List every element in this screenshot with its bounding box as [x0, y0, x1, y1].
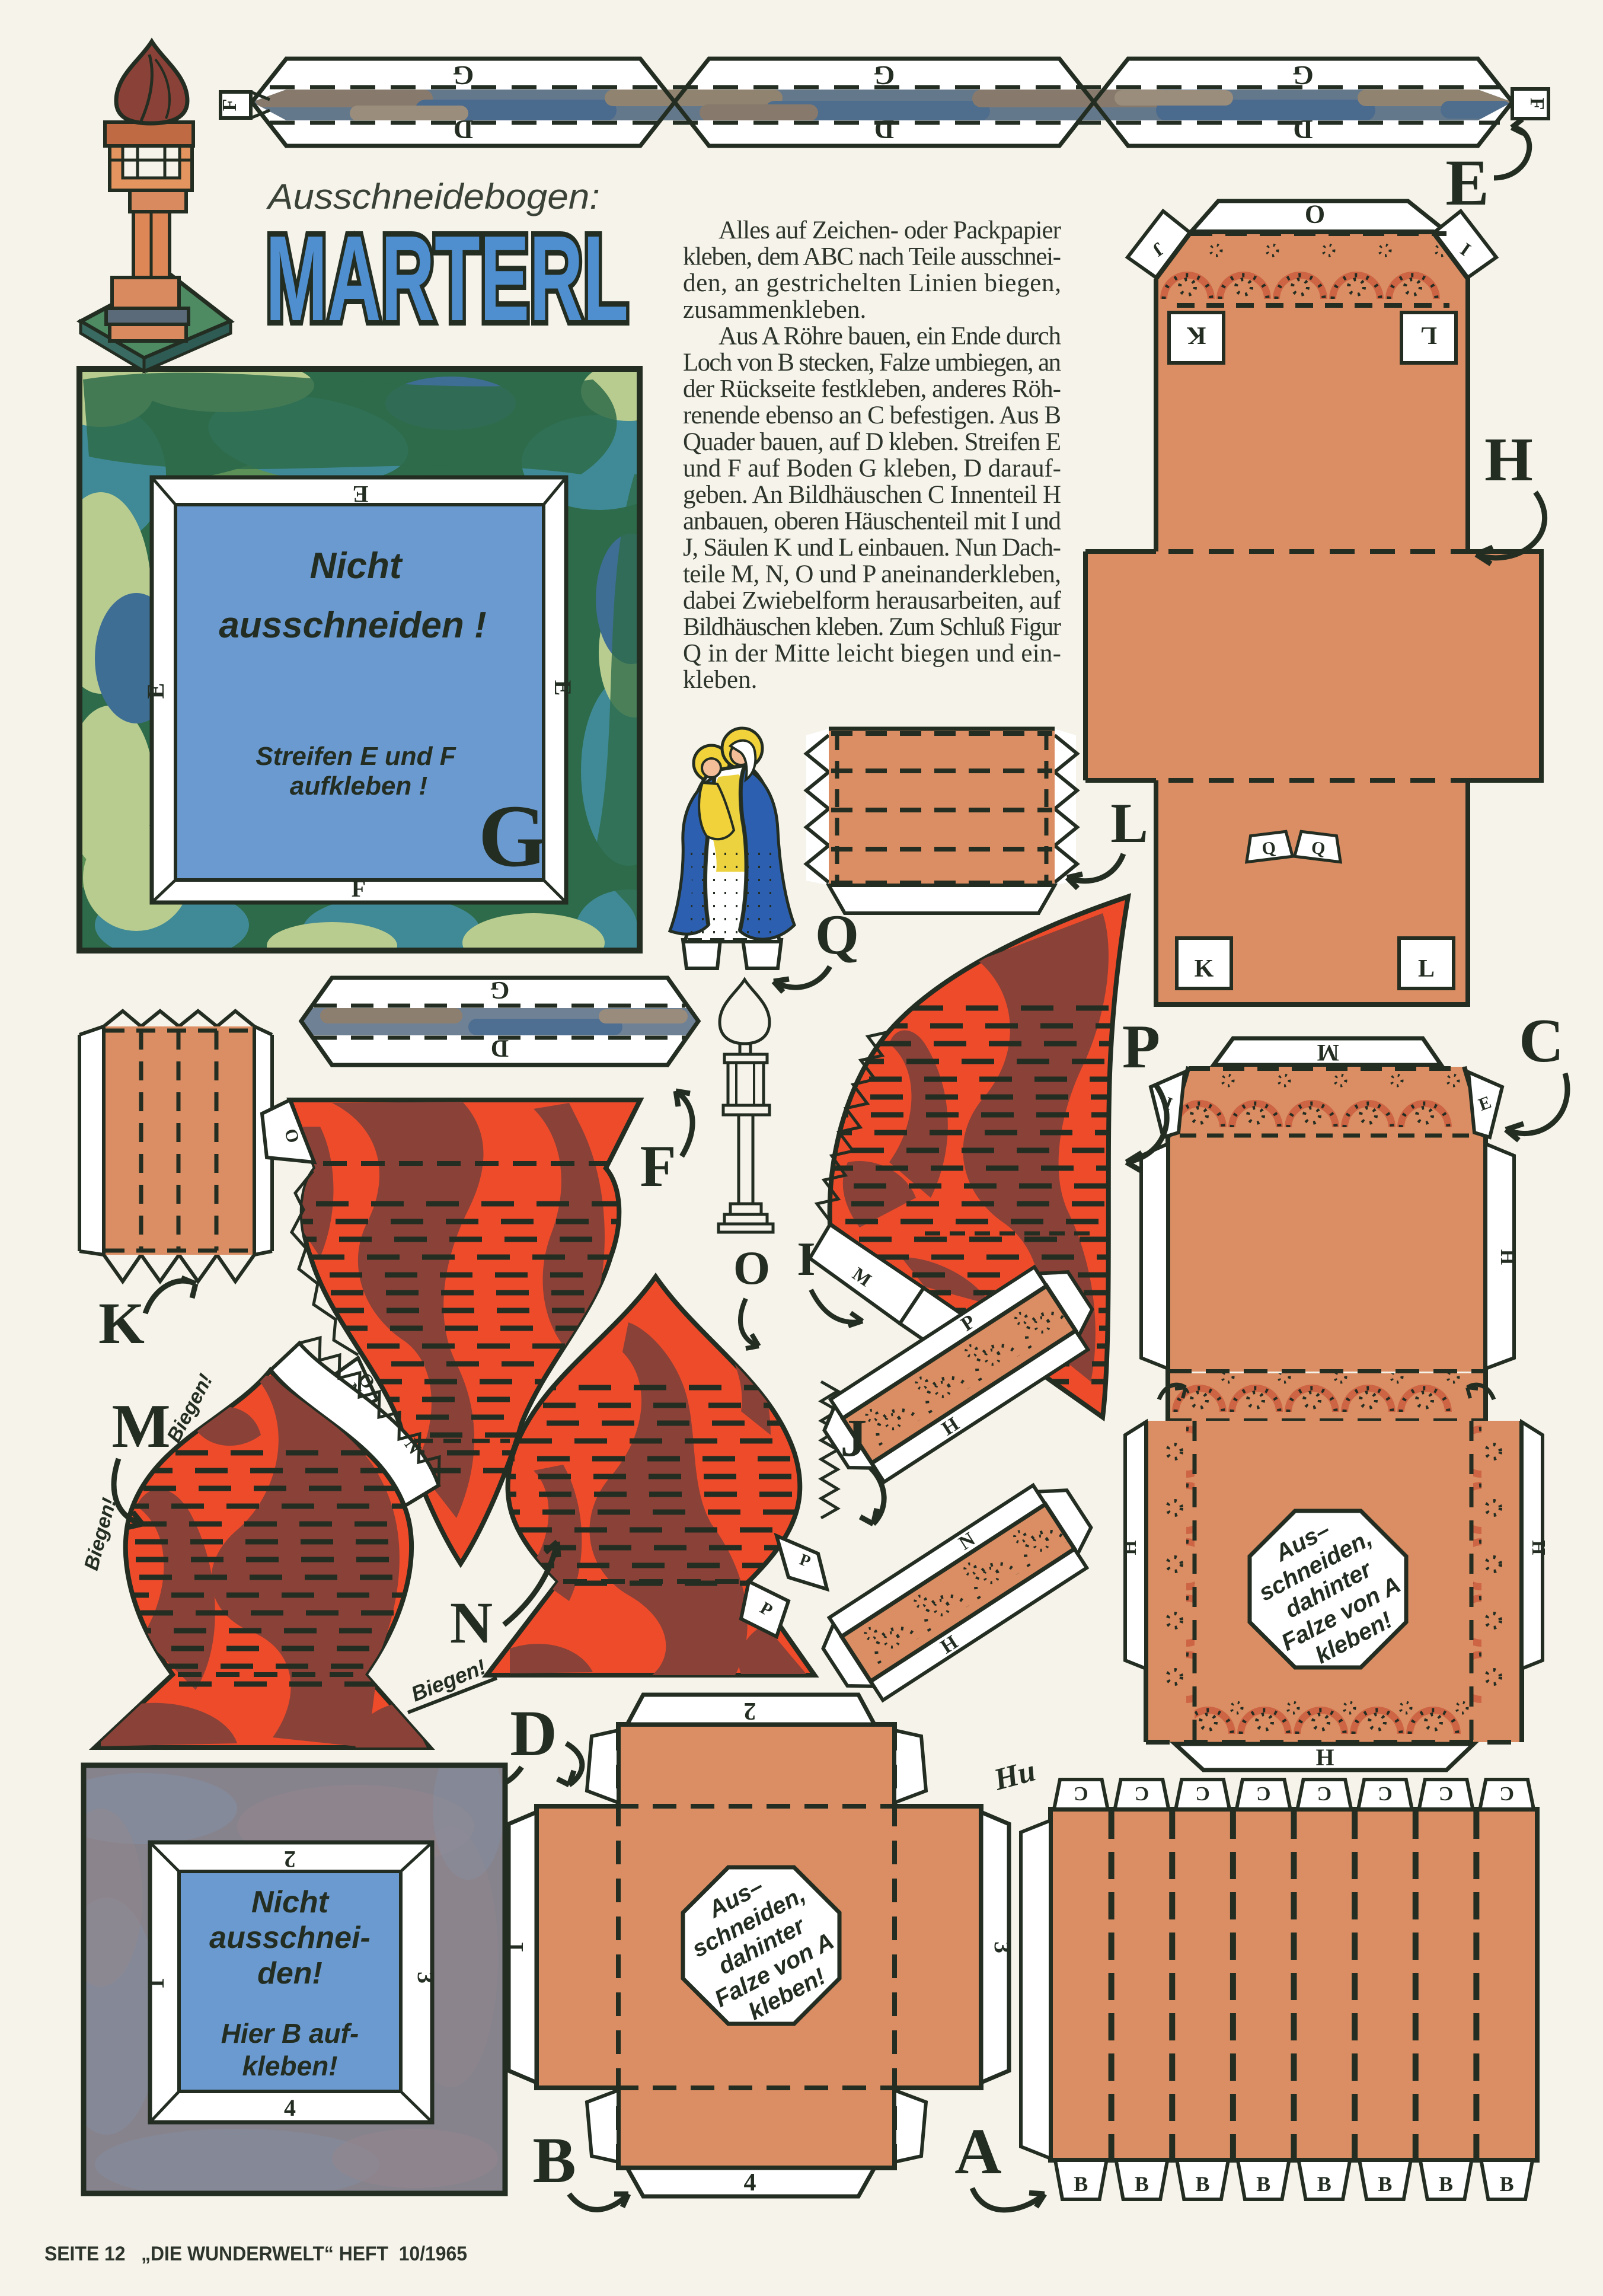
svg-text:kleben!: kleben!: [242, 2051, 337, 2081]
svg-text:J, Säulen K und L einbauen. Nu: J, Säulen K und L einbauen. Nun Dach-: [683, 534, 1061, 562]
svg-text:den, an gestrichelten Linien b: den, an gestrichelten Linien biegen,: [683, 269, 1061, 297]
svg-text:P: P: [1122, 1012, 1160, 1081]
svg-text:D: D: [454, 114, 473, 145]
svg-text:C: C: [1074, 1782, 1088, 1804]
svg-text:Q: Q: [815, 903, 859, 966]
svg-text:C: C: [1195, 1782, 1210, 1804]
svg-text:B: B: [1439, 2172, 1453, 2196]
svg-text:zusammenkleben.: zusammenkleben.: [683, 296, 866, 324]
svg-text:C: C: [1135, 1782, 1149, 1804]
svg-text:ausschnei-: ausschnei-: [209, 1921, 371, 1955]
svg-text:E: E: [353, 481, 369, 508]
svg-text:Q: Q: [1310, 838, 1326, 859]
svg-text:N: N: [450, 1590, 493, 1656]
svg-text:H: H: [1528, 1541, 1550, 1555]
svg-text:geben. An Bildhäuschen C Innen: geben. An Bildhäuschen C Innenteil H: [683, 481, 1061, 509]
svg-text:F: F: [352, 875, 366, 902]
svg-text:Quader bauen, auf D kleben. St: Quader bauen, auf D kleben. Streifen E: [683, 428, 1061, 456]
svg-text:C: C: [1519, 1006, 1564, 1075]
svg-text:Loch von B stecken, Falze umbi: Loch von B stecken, Falze umbiegen, an: [683, 349, 1061, 377]
svg-text:dabei Zwiebelform herausarbeit: dabei Zwiebelform herausarbeiten, auf: [683, 586, 1062, 614]
svg-text:F: F: [1526, 98, 1548, 110]
svg-text:G: G: [1292, 60, 1314, 91]
svg-text:O: O: [1305, 200, 1325, 229]
svg-text:kleben, dem ABC nach Teile aus: kleben, dem ABC nach Teile ausschnei-: [683, 243, 1061, 271]
svg-text:M: M: [111, 1391, 170, 1460]
svg-text:H: H: [1496, 1249, 1518, 1265]
svg-text:D: D: [1293, 114, 1313, 145]
svg-text:C: C: [1499, 1782, 1514, 1804]
svg-text:B: B: [532, 2124, 576, 2196]
svg-text:K: K: [1195, 955, 1214, 983]
svg-text:1: 1: [142, 1978, 169, 1989]
svg-text:2: 2: [284, 1846, 296, 1873]
svg-text:aufkleben !: aufkleben !: [290, 771, 427, 801]
svg-text:2: 2: [744, 1697, 756, 1724]
svg-text:Nicht: Nicht: [310, 546, 403, 586]
svg-text:H: H: [1484, 425, 1533, 494]
svg-text:E: E: [1445, 146, 1489, 219]
svg-text:J: J: [841, 1409, 867, 1468]
svg-text:L: L: [1420, 321, 1437, 349]
svg-text:4: 4: [284, 2094, 296, 2121]
svg-text:D: D: [491, 1034, 509, 1061]
svg-text:Q: Q: [1261, 838, 1277, 859]
svg-text:B: B: [1074, 2172, 1088, 2196]
svg-text:H: H: [1315, 1744, 1334, 1771]
svg-text:E: E: [550, 680, 576, 696]
svg-text:C: C: [1439, 1782, 1454, 1804]
svg-text:D: D: [510, 1697, 557, 1769]
svg-text:D: D: [874, 114, 894, 145]
svg-text:L: L: [1110, 792, 1148, 854]
svg-text:Bildhäuschen kleben. Zum Schlu: Bildhäuschen kleben. Zum Schluß Figur: [683, 613, 1061, 641]
svg-text:B: B: [1135, 2172, 1149, 2196]
svg-text:O: O: [733, 1242, 770, 1294]
svg-text:C: C: [1317, 1782, 1332, 1804]
svg-text:F: F: [219, 99, 241, 111]
svg-text:A: A: [954, 2115, 1001, 2187]
svg-text:B: B: [1500, 2172, 1514, 2196]
svg-text:M: M: [1317, 1039, 1339, 1066]
svg-text:B: B: [1196, 2172, 1210, 2196]
svg-text:den!: den!: [257, 1956, 322, 1991]
svg-text:K: K: [98, 1290, 145, 1356]
svg-text:Nicht: Nicht: [251, 1885, 330, 1919]
svg-text:ausschneiden !: ausschneiden !: [219, 605, 486, 646]
svg-text:G: G: [874, 60, 895, 91]
svg-text:G: G: [453, 60, 474, 91]
svg-text:B: B: [1317, 2172, 1331, 2196]
svg-text:H: H: [1119, 1540, 1140, 1555]
svg-text:4: 4: [744, 2169, 756, 2196]
svg-text:kleben.: kleben.: [683, 666, 757, 694]
svg-text:G: G: [490, 976, 510, 1003]
svg-text:C: C: [1256, 1782, 1271, 1804]
svg-text:Streifen E und F: Streifen E und F: [256, 742, 456, 771]
svg-text:I: I: [797, 1233, 815, 1286]
svg-text:renende ebenso an C befestigen: renende ebenso an C befestigen. Aus B: [683, 401, 1061, 429]
svg-text:teile M, N, O und P aneinander: teile M, N, O und P aneinanderkleben,: [683, 560, 1061, 588]
svg-text:G: G: [478, 787, 548, 885]
svg-text:B: B: [1378, 2172, 1392, 2196]
svg-text:anbauen, oberen Häuschenteil m: anbauen, oberen Häuschenteil mit I und: [683, 508, 1061, 535]
svg-text:E: E: [142, 683, 169, 699]
svg-text:Hier B auf-: Hier B auf-: [221, 2018, 359, 2049]
svg-text:MARTERL: MARTERL: [266, 211, 628, 346]
svg-text:B: B: [1256, 2172, 1270, 2196]
svg-text:K: K: [1186, 321, 1206, 349]
svg-text:Alles auf Zeichen- oder Packpa: Alles auf Zeichen- oder Packpapier: [719, 216, 1061, 244]
svg-text:L: L: [1418, 955, 1435, 983]
svg-text:Aus A Röhre bauen, ein Ende du: Aus A Röhre bauen, ein Ende durch: [719, 322, 1061, 350]
svg-text:3: 3: [413, 1972, 439, 1984]
svg-text:Q in der Mitte leicht biegen u: Q in der Mitte leicht biegen und ein-: [683, 640, 1061, 668]
svg-text:3: 3: [989, 1941, 1016, 1953]
svg-text:der Rückseite festkleben, ande: der Rückseite festkleben, anderes Röh-: [683, 375, 1061, 403]
svg-text:F: F: [640, 1133, 676, 1199]
svg-text:C: C: [1378, 1782, 1393, 1804]
svg-text:und F auf Boden G kleben, D da: und F auf Boden G kleben, D darauf-: [683, 454, 1061, 482]
svg-text:SEITE 12 „DIE WUNDERWELT“ HE: SEITE 12 „DIE WUNDERWELT“ HEFT 10/1965: [44, 2243, 467, 2265]
